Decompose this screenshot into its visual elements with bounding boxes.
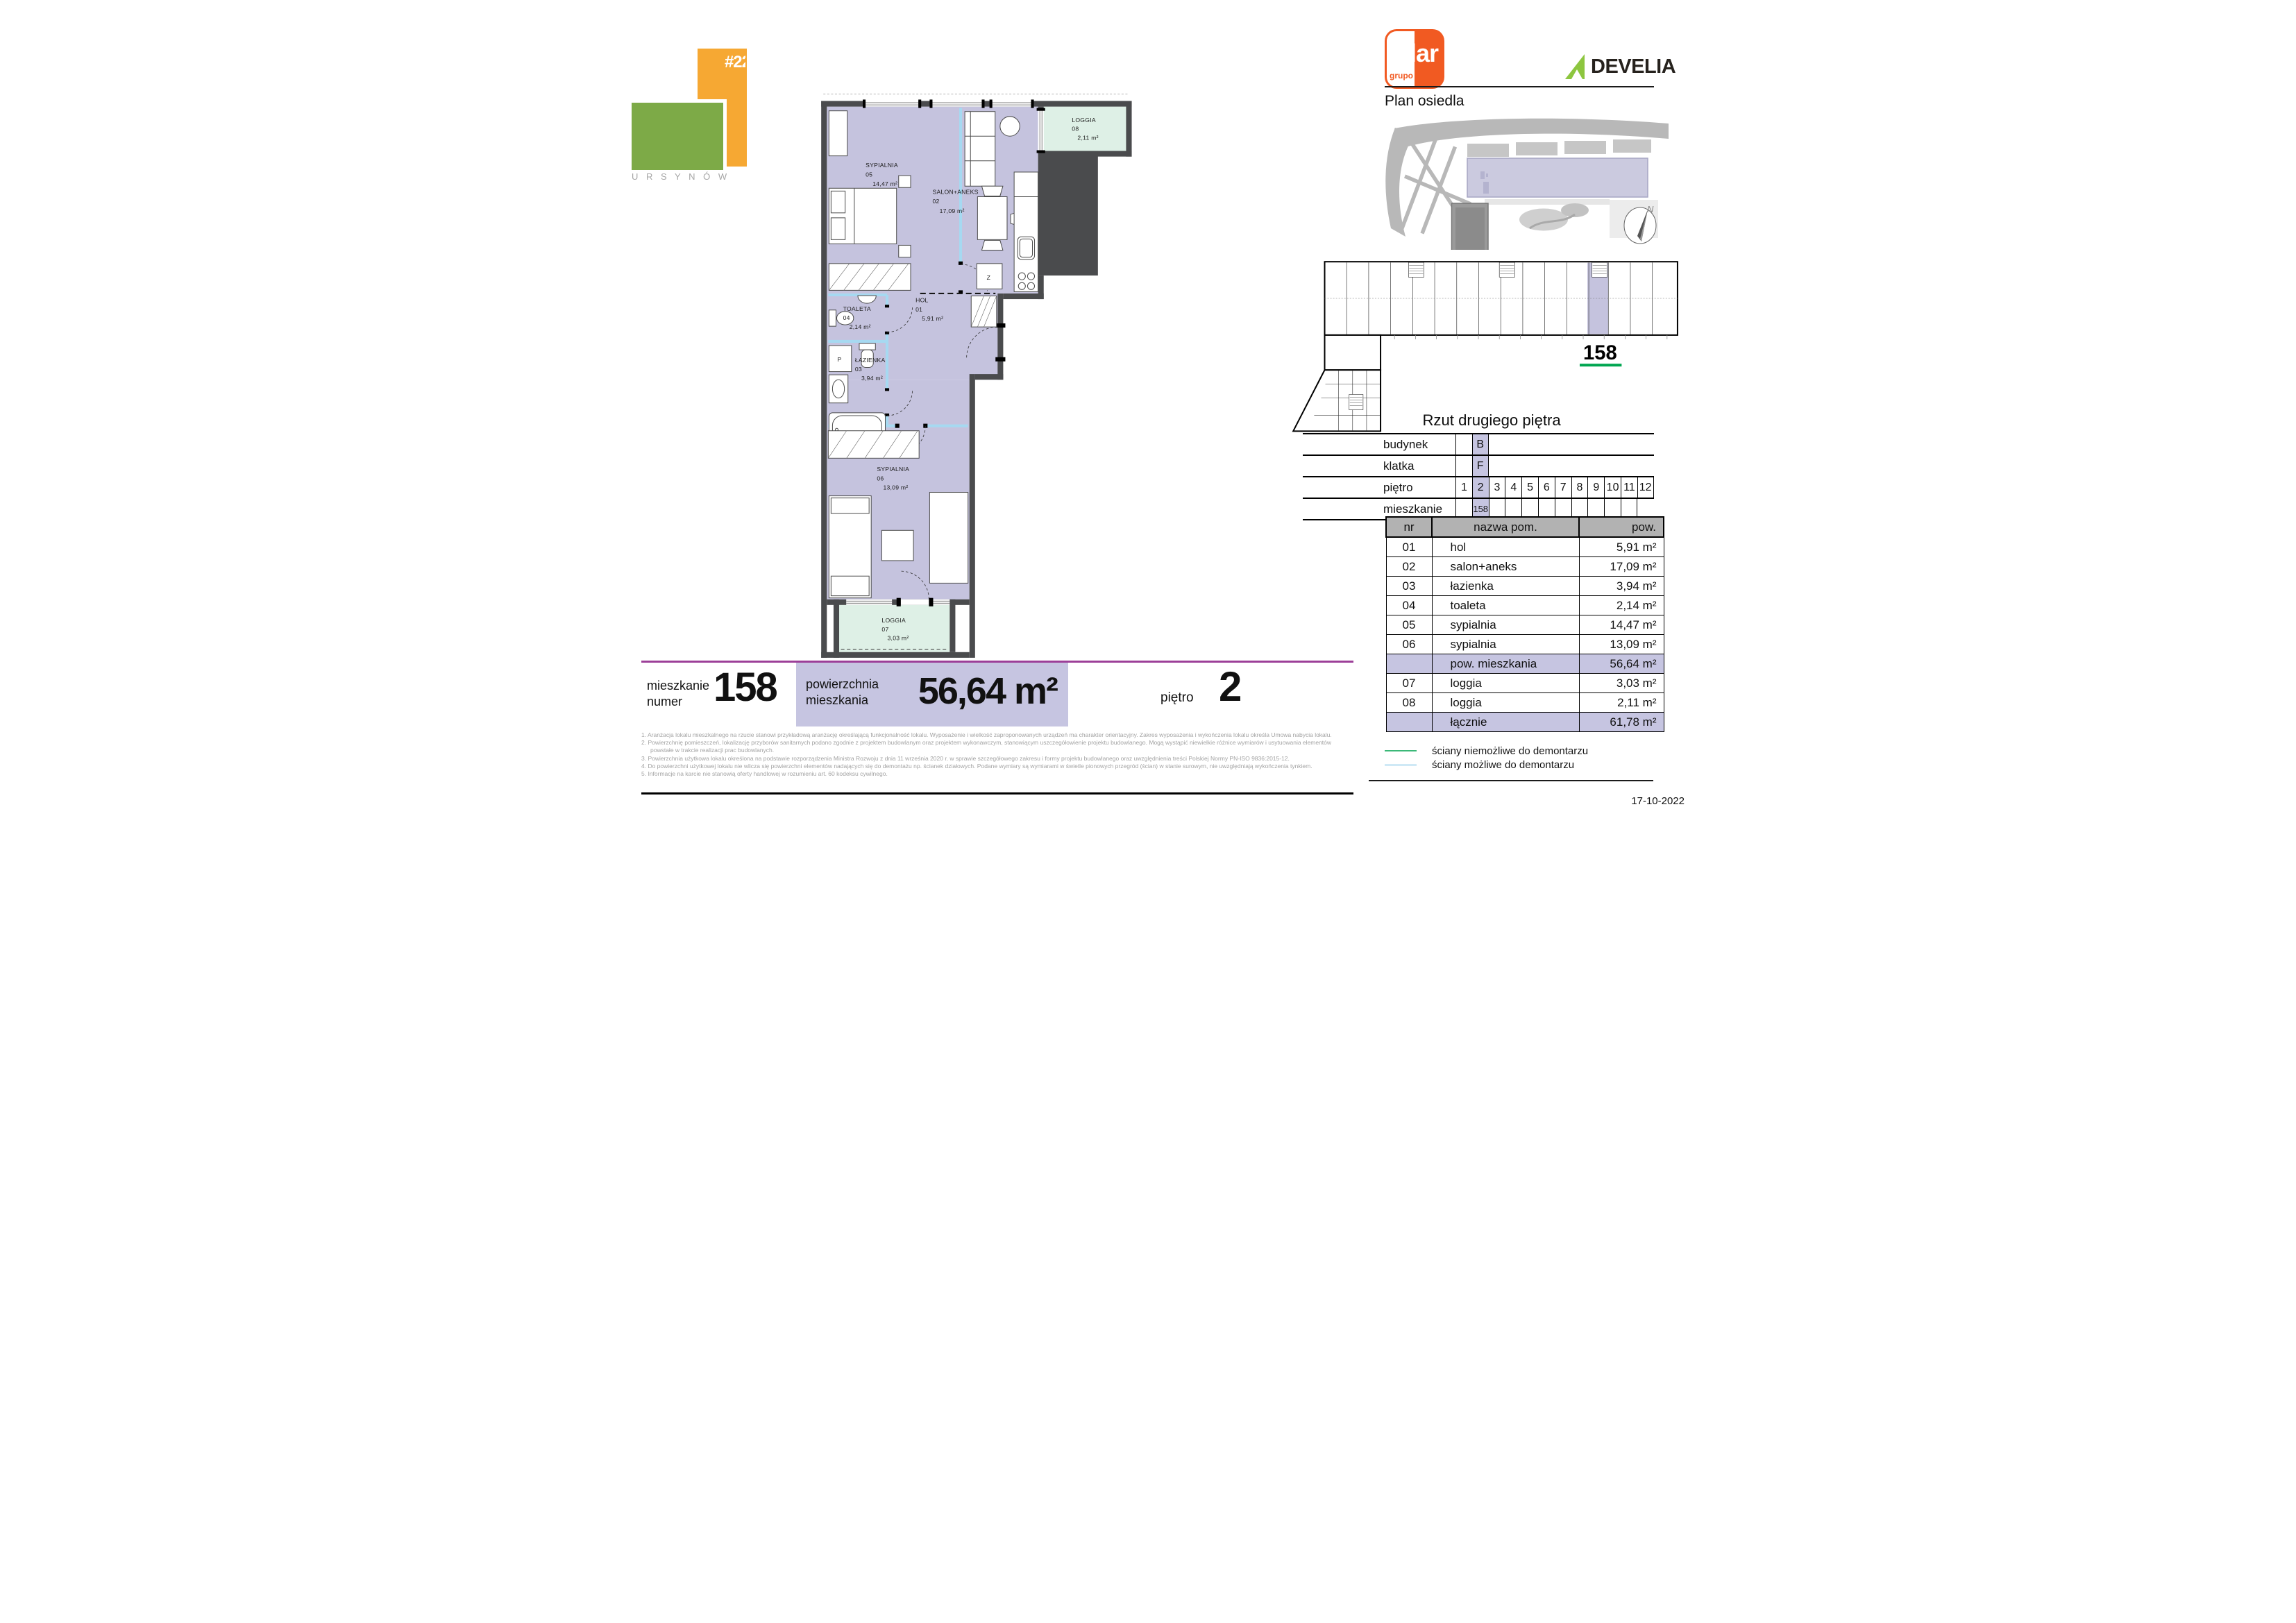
area-value: 56,64 m² — [918, 670, 1057, 713]
info-label: mieszkanie — [1303, 502, 1455, 516]
info-cell — [1455, 456, 1472, 476]
info-label: budynek — [1303, 438, 1455, 452]
round-table-icon — [1000, 117, 1020, 136]
kitchen-counter-icon — [1014, 172, 1038, 291]
logo-green-block — [632, 99, 727, 170]
unit-number-underline — [1580, 364, 1621, 366]
cabinet-icon — [829, 111, 847, 156]
compass-n: N — [1647, 204, 1654, 214]
floor-cell: 6 — [1538, 477, 1555, 498]
logo-tag-text: #22 — [725, 53, 745, 72]
table-row: 07loggia3,03 m² — [1386, 674, 1664, 693]
floor-number: 2 — [1219, 663, 1242, 711]
header-nr: nr — [1386, 517, 1432, 537]
table-row-total: łącznie61,78 m² — [1386, 713, 1664, 732]
road-left — [1385, 128, 1412, 237]
table-row-summary: pow. mieszkania56,64 m² — [1386, 654, 1664, 674]
floor-cell: 4 — [1505, 477, 1521, 498]
legend: ściany niemożliwe do demontarzu ściany m… — [1385, 744, 1588, 772]
legend-item: ściany niemożliwe do demontarzu — [1385, 744, 1588, 758]
grupo-text: grupo — [1390, 71, 1413, 80]
footnote: 2. Powierzchnię pomieszczeń, lokalizację… — [641, 739, 1353, 754]
bottom-rule — [641, 792, 1353, 794]
toilet2-icon — [859, 343, 875, 350]
site-map: N — [1381, 114, 1679, 250]
building-floor-plan: 158 Rzut drugiego piętra — [1272, 258, 1685, 433]
room-table-header: nr nazwa pom. pow. — [1386, 517, 1664, 537]
city-blocks — [1467, 139, 1651, 157]
floor-label: piętro — [1160, 690, 1194, 706]
room-name: SYPIALNIA — [866, 162, 898, 169]
floor-cell: 1 — [1455, 477, 1472, 498]
footnote: 1. Aranżacja lokalu mieszkalnego na rzuc… — [641, 731, 1353, 739]
develia-logo: DEVELIA — [1565, 54, 1675, 79]
floor-cell-current: 2 — [1472, 477, 1489, 498]
divider-line-2 — [1369, 780, 1653, 781]
table-row: 08loggia2,11 m² — [1386, 693, 1664, 713]
area-box: powierzchnia mieszkania 56,64 m² — [796, 663, 1068, 726]
legend-label: ściany możliwe do demontarzu — [1432, 759, 1574, 771]
info-row-klatka: klatka F — [1303, 454, 1654, 476]
legend-label: ściany niemożliwe do demontarzu — [1432, 745, 1588, 757]
table-row: 02salon+aneks17,09 m² — [1386, 557, 1664, 577]
footnotes: 1. Aranżacja lokalu mieszkalnego na rzuc… — [641, 731, 1353, 778]
floor-view-caption: Rzut drugiego piętra — [1422, 411, 1561, 429]
wardrobe2-icon — [828, 431, 919, 459]
loggia-08-fill — [1044, 107, 1126, 151]
building-floor-svg: 158 Rzut drugiego piętra — [1272, 258, 1685, 433]
footnote: 5. Informacje na karcie nie stanowią ofe… — [641, 770, 1353, 778]
site-map-svg: N — [1381, 114, 1679, 250]
legend-swatch-removable-walls — [1385, 764, 1417, 766]
floor-cell: 12 — [1637, 477, 1654, 498]
apartment-label: mieszkanie numer — [647, 678, 709, 709]
table-row: 04toaleta2,14 m² — [1386, 596, 1664, 615]
develia-triangle-icon — [1565, 54, 1586, 79]
apartment-number: 158 — [714, 664, 777, 711]
logo-number-tag: #22 — [698, 53, 745, 72]
info-cell-budynek: B — [1472, 434, 1489, 454]
cooktop-icon — [1018, 273, 1025, 280]
toilet-icon — [829, 310, 836, 326]
legend-item: ściany możliwe do demontarzu — [1385, 758, 1588, 772]
building-frontage — [1485, 199, 1610, 205]
room-area: 14,47 m² — [872, 180, 897, 187]
sofa-icon — [965, 112, 995, 187]
floor-plan-svg: SYPIALNIA0514,47 m² SALON+ANEKS0217,09 m… — [813, 80, 1154, 658]
table-row: 05sypialnia14,47 m² — [1386, 615, 1664, 635]
info-label: klatka — [1303, 459, 1455, 473]
footnote: 4. Do powierzchni użytkowej lokalu nie w… — [641, 763, 1353, 770]
floor-cell: 8 — [1571, 477, 1588, 498]
grupo-lar-logo: grupo lar — [1385, 29, 1444, 89]
corner-section — [1325, 335, 1381, 370]
info-cell-empty — [1489, 434, 1654, 454]
unit-info-table: budynek B klatka F piętro 1 2 3 4 5 6 7 … — [1303, 433, 1654, 520]
info-row-pietro: piętro 1 2 3 4 5 6 7 8 9 10 11 12 — [1303, 476, 1654, 498]
develia-wordmark: DEVELIA — [1591, 56, 1675, 78]
highlighted-building — [1467, 158, 1648, 197]
table-row: 03łazienka3,94 m² — [1386, 577, 1664, 596]
info-cell — [1455, 434, 1472, 454]
logo-city-name: U R S Y N Ó W — [632, 171, 747, 182]
floor-cell: 11 — [1621, 477, 1637, 498]
floor-cell: 10 — [1604, 477, 1621, 498]
unit-number: 158 — [1583, 342, 1617, 364]
loggia-07-fill — [839, 605, 949, 652]
room-number: 05 — [866, 171, 872, 178]
floor-cell: 9 — [1587, 477, 1604, 498]
floor-cell: 3 — [1489, 477, 1505, 498]
z-marker: Z — [987, 274, 991, 281]
room-area-table: nr nazwa pom. pow. 01hol5,91 m² 02salon+… — [1385, 516, 1664, 732]
floor-cell: 7 — [1555, 477, 1571, 498]
floor-plan: SYPIALNIA0514,47 m² SALON+ANEKS0217,09 m… — [813, 80, 1154, 658]
lar-text: lar — [1410, 39, 1438, 68]
salon-loggia-window — [1038, 110, 1044, 151]
divider-line-1 — [1385, 86, 1654, 87]
info-row-budynek: budynek B — [1303, 433, 1654, 454]
legend-swatch-fixed-walls — [1385, 750, 1417, 751]
info-cell-empty — [1489, 456, 1654, 476]
header-nazwa: nazwa pom. — [1432, 517, 1579, 537]
site-plan-title: Plan osiedla — [1385, 93, 1464, 110]
table-row: 06sypialnia13,09 m² — [1386, 635, 1664, 654]
footnote: 3. Powierzchnia użytkowa lokalu określon… — [641, 755, 1353, 763]
lower-wing — [1293, 370, 1381, 431]
apartment-card-page: #22 U R S Y N Ó W — [574, 0, 1722, 812]
dining-table-icon — [977, 196, 1007, 239]
summary-bar: mieszkanie numer 158 powierzchnia mieszk… — [641, 663, 1353, 728]
floor-cell: 5 — [1521, 477, 1538, 498]
info-cell-klatka: F — [1472, 456, 1489, 476]
p-marker: P — [838, 356, 842, 363]
wardrobe3-icon — [929, 493, 968, 584]
header-pow: pow. — [1579, 517, 1664, 537]
table-row: 01hol5,91 m² — [1386, 537, 1664, 557]
info-label: piętro — [1303, 481, 1455, 495]
desk-icon — [881, 530, 913, 561]
date-stamp: 17-10-2022 — [1601, 795, 1685, 807]
area-label: powierzchnia mieszkania — [806, 677, 879, 708]
